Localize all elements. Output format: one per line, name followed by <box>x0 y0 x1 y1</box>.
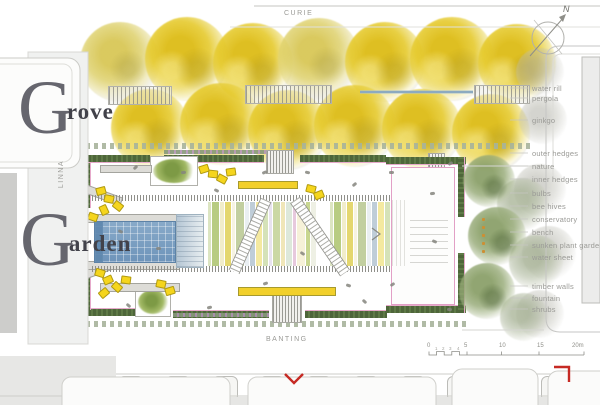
scale-minor-label: 2 <box>442 346 445 351</box>
title-garden: Garden <box>20 202 135 278</box>
title-grove: Grove <box>18 70 118 146</box>
legend-label-water-sheet: water sheet <box>532 253 573 262</box>
site-plan: CURIE BANTING LINNA Grove Garden N water… <box>0 0 600 405</box>
legend-label-inner-hedges: inner hedges <box>532 175 578 184</box>
legend-label-timber-walls: timber walls <box>532 282 574 291</box>
scale-major-label: 15 <box>537 343 544 349</box>
text-layer: CURIE BANTING LINNA Grove Garden N water… <box>0 0 600 405</box>
title-garden-initial: G <box>20 198 73 282</box>
scale-minor-label: 1 <box>435 346 438 351</box>
scale-major-label: 10 <box>499 343 506 349</box>
scale-minor-label: 3 <box>449 346 452 351</box>
compass-north-label: N <box>563 4 570 14</box>
street-label-linna: LINNA <box>58 160 65 188</box>
legend-label-fountain: fountain <box>532 294 560 303</box>
legend-label-pergola: pergola <box>532 94 558 103</box>
legend-label-conservatory: conservatory <box>532 215 577 224</box>
legend-label-bench: bench <box>532 228 553 237</box>
title-grove-initial: G <box>18 66 71 150</box>
street-label-curie: CURIE <box>284 10 313 17</box>
legend-label-outer-hedges: outer hedges <box>532 149 578 158</box>
legend-label-ginkgo: ginkgo <box>532 116 555 125</box>
street-label-banting: BANTING <box>266 336 308 343</box>
legend-label-nature: nature <box>532 162 554 171</box>
legend-label-bulbs: bulbs <box>532 189 551 198</box>
scale-major-label: 20m <box>572 343 584 349</box>
scale-minor-label: 4 <box>457 346 460 351</box>
legend-label-water-rill: water rill <box>532 84 562 93</box>
title-garden-rest: arden <box>69 231 132 256</box>
scale-major-label: 0 <box>427 343 430 349</box>
title-grove-rest: rove <box>67 99 114 124</box>
legend-label-sunken-plant-garden: sunken plant garden <box>532 241 600 250</box>
scale-major-label: 5 <box>464 343 467 349</box>
legend-label-shrubs: shrubs <box>532 305 556 314</box>
legend-label-bee-hives: bee hives <box>532 202 566 211</box>
